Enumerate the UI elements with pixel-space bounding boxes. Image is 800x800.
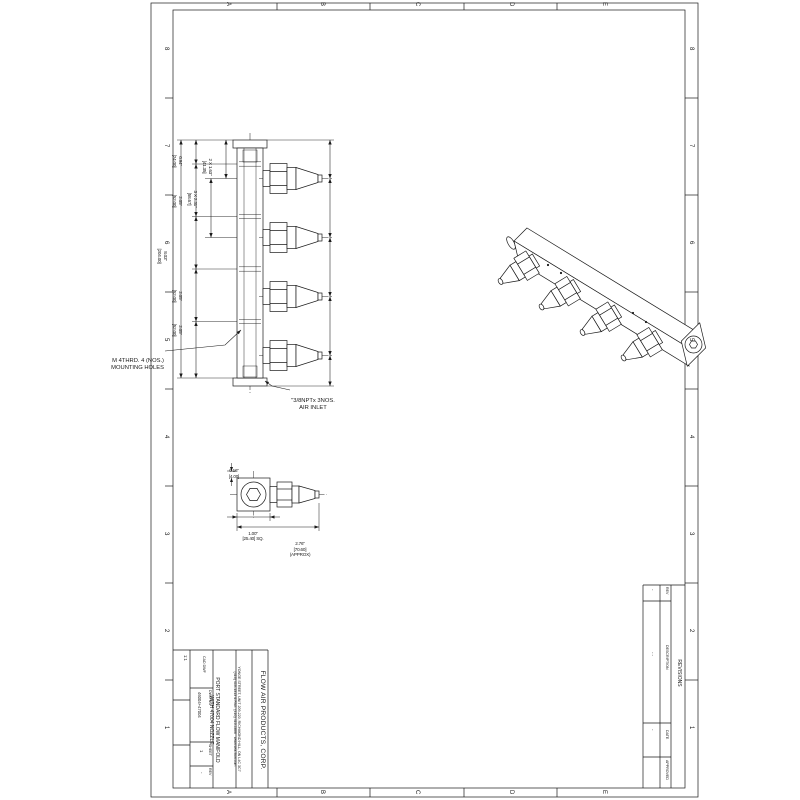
zone-row-label: 4 [163, 435, 169, 438]
sheet-value: 1 [199, 750, 204, 762]
revisions-val-description: - - [650, 652, 655, 672]
revisions-col-description: DESCRIPTION [665, 645, 669, 679]
zone-col-label: E [601, 790, 607, 794]
zone-row-label: 7 [688, 144, 694, 147]
zone-col-label: C [414, 2, 420, 6]
note-mounting-holes: M 4THRD. 4 (NOS.)MOUNTING HOLES [88, 344, 164, 386]
company-name: FLOW AIR PRODUCTS, CORP. [259, 654, 267, 786]
dim-nozzle-pitch: 3 X 2.31"[58.67] [175, 181, 209, 217]
zone-row-label: 2 [163, 629, 169, 632]
dim-top-offset: 0.94"[24.00] [160, 144, 194, 178]
dwg-no-value: 46004+47004 [197, 692, 202, 742]
zone-row-label: 6 [688, 241, 694, 244]
zone-row-label: 3 [688, 532, 694, 535]
dim-hole-pitch: 2.05"[52.00] [160, 313, 194, 347]
drawing-sheet: A B C D E A B C D E 8 7 6 5 4 3 2 1 8 7 … [0, 0, 800, 800]
revisions-val-date: - [650, 729, 655, 741]
zone-col-label: C [414, 790, 420, 794]
dim-hole-pitch: 2.05"[52.00] [160, 279, 194, 313]
cad-label: CAD DWF [202, 656, 206, 688]
zone-row-label: 8 [163, 47, 169, 50]
revisions-col-date: DATE [665, 730, 669, 746]
rev-value: - [199, 772, 204, 784]
zone-col-label: E [601, 2, 607, 6]
dim-square: 1.00"[25.40] SQ. [231, 520, 275, 554]
zone-row-label: 8 [688, 47, 694, 50]
revisions-col-approved: APPROVED [665, 760, 669, 788]
scale-value: 1:1 [183, 655, 188, 675]
note-air-inlet: "3/8NPTx 3NOS.AIR INLET [278, 384, 348, 426]
zone-col-label: D [508, 2, 514, 6]
revisions-val-rev: - [650, 589, 655, 601]
dwg-no-label: DWG NO [208, 690, 212, 712]
zone-col-label: D [508, 790, 514, 794]
front-view-nozzles [259, 164, 334, 371]
zone-row-label: 3 [163, 532, 169, 535]
zone-row-label: 4 [688, 435, 694, 438]
zone-col-label: A [225, 790, 231, 794]
zone-row-label: 1 [163, 726, 169, 729]
zone-col-label: A [225, 2, 231, 6]
zone-row-label: 1 [688, 726, 694, 729]
revisions-col-rev: REV [665, 587, 669, 600]
dim-nozzle-offset: 2 X 1.63"[41.35] [190, 149, 224, 185]
rev-label: REV [208, 768, 212, 784]
dim-hex-offset: 0.16"[4.00] [222, 457, 246, 491]
isometric-view [492, 228, 706, 370]
dim-length: 2.76"[70.60](APPROX) [278, 530, 322, 569]
sheet-label: SHEET [208, 744, 212, 764]
zone-col-label: B [319, 2, 325, 6]
revisions-banner: REVISIONS [676, 658, 682, 688]
zone-row-label: 2 [688, 629, 694, 632]
dim-overall: 8.03"[204.00] [145, 238, 179, 274]
zone-col-label: B [319, 790, 325, 794]
zone-row-label: 5 [688, 338, 694, 341]
